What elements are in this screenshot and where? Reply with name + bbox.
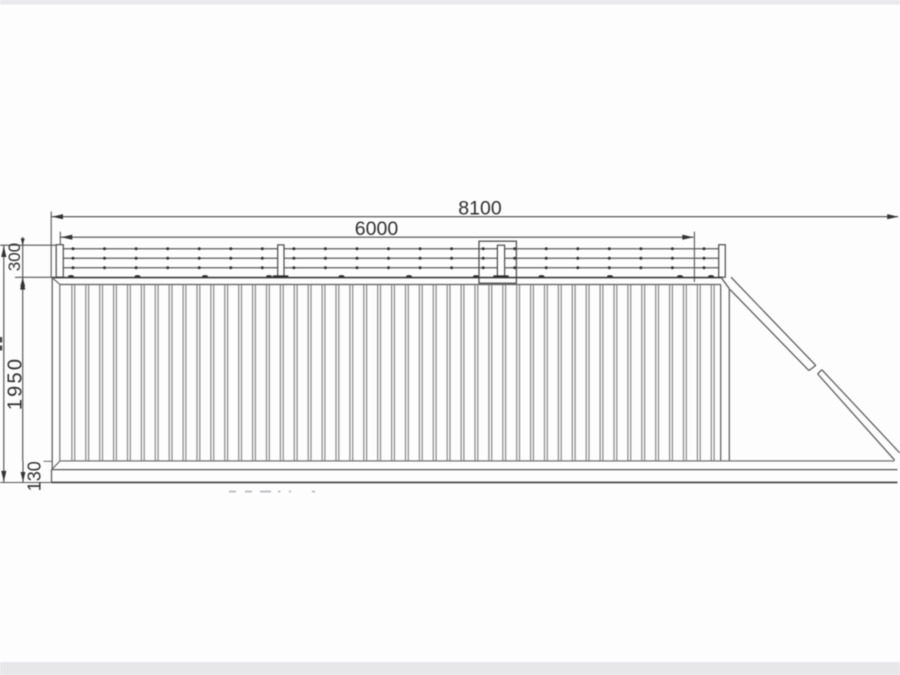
svg-text:300: 300 (5, 243, 24, 271)
svg-text:1950: 1950 (4, 357, 26, 410)
svg-text:130: 130 (25, 461, 45, 491)
svg-text:8100: 8100 (458, 197, 502, 219)
svg-text:6000: 6000 (355, 218, 399, 240)
